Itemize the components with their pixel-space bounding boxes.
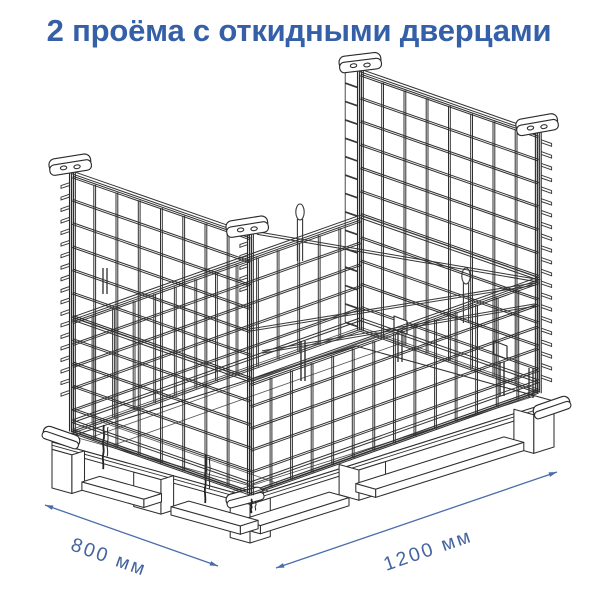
svg-text:2 проёма с откидными дверцами: 2 проёма с откидными дверцами [47, 13, 552, 48]
